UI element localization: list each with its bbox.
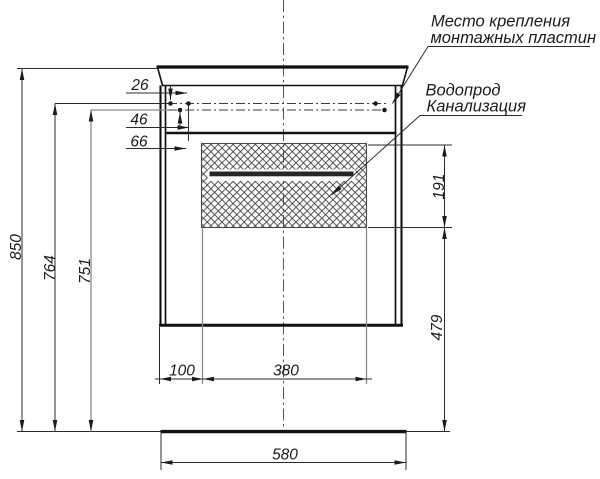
dim-380-label: 380 xyxy=(273,363,299,380)
dimension-764: 764 xyxy=(42,104,59,432)
mounting-dot xyxy=(178,108,183,113)
countertop xyxy=(157,67,409,86)
dim-580-label: 580 xyxy=(272,447,298,464)
dim-46-label: 46 xyxy=(130,112,148,129)
dim-26-label: 26 xyxy=(130,77,149,94)
dim-191-label: 191 xyxy=(431,174,448,200)
dim-479-label: 479 xyxy=(429,314,446,340)
dimension-callout-26: 26 xyxy=(126,77,187,100)
mounting-dot xyxy=(382,108,387,113)
vanity-installation-drawing: Место крепления монтажных пластин Водопр… xyxy=(0,0,600,479)
dim-751-label: 751 xyxy=(77,258,94,284)
dim-764-label: 764 xyxy=(42,255,59,281)
mounting-label-line2: монтажных пластин xyxy=(431,29,597,47)
dimension-580: 580 xyxy=(161,433,406,470)
dimension-callout-46: 46 xyxy=(126,112,189,129)
dimension-479: 479 xyxy=(429,228,446,432)
drawer-handle-bar xyxy=(210,172,354,177)
mounting-label-line1: Место крепления xyxy=(431,13,570,31)
mounting-dot xyxy=(168,101,173,106)
dim-850-label: 850 xyxy=(8,234,25,260)
dimension-191: 191 xyxy=(368,145,452,228)
dimension-100-380: 100 380 xyxy=(155,228,372,385)
dim-100-label: 100 xyxy=(169,363,195,380)
mounting-dot xyxy=(373,101,378,106)
dimension-751: 751 xyxy=(77,110,94,432)
dim-66-label: 66 xyxy=(130,134,148,151)
mounting-points xyxy=(55,101,388,112)
sewer-label: Канализация xyxy=(427,98,527,116)
